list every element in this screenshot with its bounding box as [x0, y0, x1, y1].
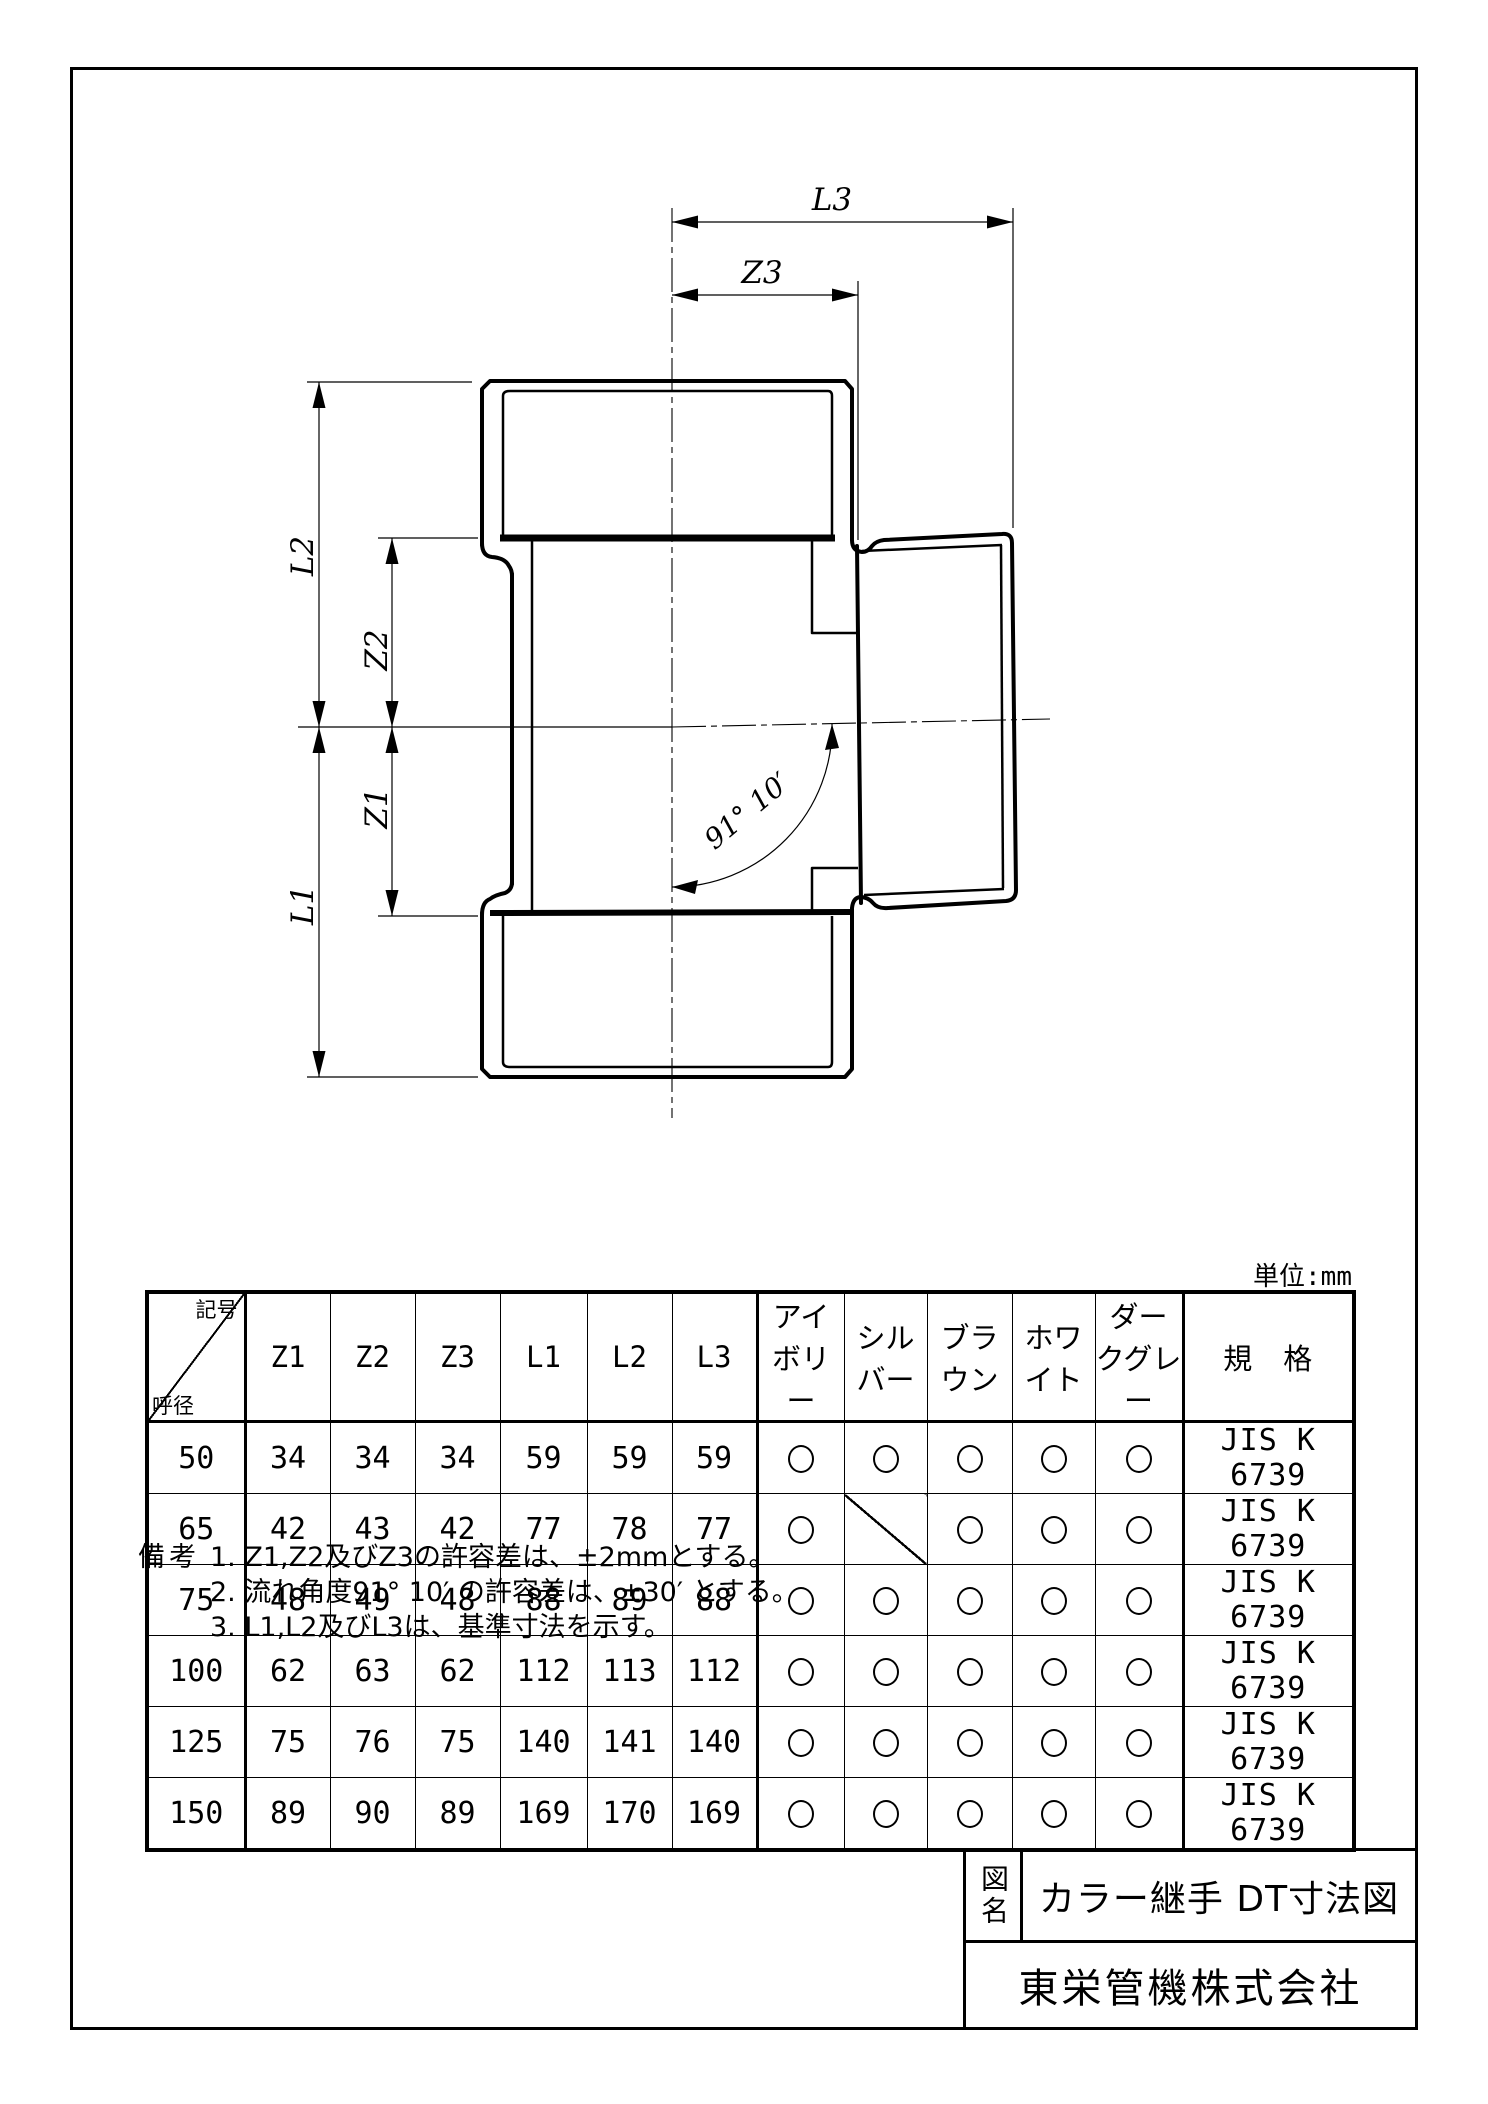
dimension-Z1: Z1 [359, 727, 478, 916]
column-header-シルバー: シルバー [844, 1292, 927, 1422]
available-circle-icon [1126, 1658, 1152, 1686]
column-header-アイボリー: アイボリー [757, 1292, 844, 1422]
dim-value-cell: 62 [245, 1636, 330, 1707]
color-availability-cell [1012, 1422, 1095, 1494]
label-Z2: Z2 [359, 629, 395, 671]
available-circle-icon [1126, 1729, 1152, 1757]
color-availability-cell [927, 1422, 1012, 1494]
dim-value-cell: 90 [330, 1778, 415, 1851]
label-L1: L1 [285, 885, 321, 926]
notes: 備考 1. Z1,Z2及びZ3の許容差は、±2mmとする。2. 流れ角度91° … [138, 1540, 799, 1645]
label-angle: 91° 10′ [698, 765, 797, 855]
column-header-規 格: 規 格 [1183, 1292, 1354, 1422]
title-block: 図名 カラー継手 DT寸法図 東栄管機株式会社 [963, 1848, 1418, 2030]
available-circle-icon [1126, 1587, 1152, 1615]
dimension-L3: L3 [672, 182, 1013, 528]
color-availability-cell [1095, 1494, 1183, 1565]
title-block-field-label: 図名 [966, 1851, 1023, 1940]
column-header-L2: L2 [587, 1292, 672, 1422]
color-availability-cell [927, 1565, 1012, 1636]
dim-value-cell: 89 [245, 1778, 330, 1851]
size-cell: 100 [147, 1636, 245, 1707]
note-item-2: 2. 流れ角度91° 10′ の許容差は、±30′ とする。 [210, 1575, 799, 1610]
color-availability-cell [844, 1707, 927, 1778]
available-circle-icon [957, 1587, 983, 1615]
dim-value-cell: 34 [415, 1422, 500, 1494]
drawing-title: カラー継手 DT寸法図 [1023, 1851, 1415, 1940]
column-header-ブラウン: ブラウン [927, 1292, 1012, 1422]
table-row-50: 50343434595959JIS K 6739 [147, 1422, 1354, 1494]
available-circle-icon [873, 1729, 899, 1757]
drawing-sheet: L3 Z3 L2 Z2 [0, 0, 1488, 2104]
dimension-Z3: Z3 [672, 255, 858, 540]
available-circle-icon [873, 1587, 899, 1615]
standard-cell: JIS K 6739 [1183, 1778, 1354, 1851]
available-circle-icon [1126, 1800, 1152, 1828]
available-circle-icon [1126, 1445, 1152, 1473]
column-header-Z1: Z1 [245, 1292, 330, 1422]
table-row-100: 100626362112113112JIS K 6739 [147, 1636, 1354, 1707]
available-circle-icon [873, 1445, 899, 1473]
available-circle-icon [873, 1658, 899, 1686]
table-corner-cell: 記号呼径 [147, 1292, 245, 1422]
dim-value-cell: 76 [330, 1707, 415, 1778]
fitting-drawing: L3 Z3 L2 Z2 [0, 0, 1488, 1250]
available-circle-icon [788, 1729, 814, 1757]
color-availability-cell [1095, 1778, 1183, 1851]
dim-value-cell: 112 [500, 1636, 587, 1707]
column-header-Z3: Z3 [415, 1292, 500, 1422]
dim-value-cell: 113 [587, 1636, 672, 1707]
color-availability-cell [1095, 1707, 1183, 1778]
dimension-L2: L2 [285, 382, 472, 727]
dim-value-cell: 34 [330, 1422, 415, 1494]
dim-value-cell: 75 [245, 1707, 330, 1778]
color-availability-cell [927, 1494, 1012, 1565]
column-header-ダークグレー: ダークグレー [1095, 1292, 1183, 1422]
standard-cell: JIS K 6739 [1183, 1565, 1354, 1636]
color-availability-cell [1095, 1422, 1183, 1494]
size-cell: 125 [147, 1707, 245, 1778]
note-item-1: 1. Z1,Z2及びZ3の許容差は、±2mmとする。 [210, 1540, 799, 1575]
color-availability-cell [1012, 1494, 1095, 1565]
column-header-L1: L1 [500, 1292, 587, 1422]
table-row-125: 125757675140141140JIS K 6739 [147, 1707, 1354, 1778]
notes-heading: 備考 [138, 1540, 200, 1645]
color-availability-cell [1095, 1636, 1183, 1707]
dim-value-cell: 62 [415, 1636, 500, 1707]
size-cell: 150 [147, 1778, 245, 1851]
unit-label: 単位:mm [1180, 1256, 1352, 1293]
fitting-outline [482, 381, 1016, 1077]
color-availability-cell [1012, 1778, 1095, 1851]
available-circle-icon [1041, 1658, 1067, 1686]
label-Z3: Z3 [740, 255, 782, 291]
dim-value-cell: 169 [500, 1778, 587, 1851]
available-circle-icon [788, 1445, 814, 1473]
dimension-Z2: Z2 [359, 538, 478, 727]
color-availability-cell [844, 1565, 927, 1636]
not-available-slash [844, 1494, 927, 1565]
dim-value-cell: 112 [672, 1636, 757, 1707]
standard-cell: JIS K 6739 [1183, 1494, 1354, 1565]
company-name: 東栄管機株式会社 [966, 1943, 1415, 2027]
note-item-3: 3. L1,L2及びL3は、基準寸法を示す。 [210, 1610, 799, 1645]
dim-value-cell: 34 [245, 1422, 330, 1494]
standard-cell: JIS K 6739 [1183, 1422, 1354, 1494]
label-L2: L2 [285, 536, 321, 577]
available-circle-icon [1041, 1445, 1067, 1473]
dim-value-cell: 140 [672, 1707, 757, 1778]
dim-value-cell: 59 [500, 1422, 587, 1494]
color-availability-cell [1012, 1636, 1095, 1707]
color-availability-cell [1095, 1565, 1183, 1636]
color-availability-cell [757, 1707, 844, 1778]
column-header-L3: L3 [672, 1292, 757, 1422]
dimension-L1: L1 [285, 727, 478, 1077]
color-availability-cell [844, 1636, 927, 1707]
color-availability-cell [927, 1707, 1012, 1778]
color-availability-cell [844, 1778, 927, 1851]
dim-value-cell: 169 [672, 1778, 757, 1851]
color-availability-cell [927, 1778, 1012, 1851]
color-availability-cell [1012, 1565, 1095, 1636]
color-availability-cell [757, 1422, 844, 1494]
corner-symbol-label: 記号 [196, 1294, 238, 1324]
dim-value-cell: 170 [587, 1778, 672, 1851]
color-availability-cell [844, 1422, 927, 1494]
available-circle-icon [957, 1729, 983, 1757]
available-circle-icon [1041, 1516, 1067, 1544]
available-circle-icon [788, 1800, 814, 1828]
available-circle-icon [1041, 1587, 1067, 1615]
available-circle-icon [1041, 1800, 1067, 1828]
available-circle-icon [957, 1658, 983, 1686]
available-circle-icon [1041, 1729, 1067, 1757]
dim-value-cell: 75 [415, 1707, 500, 1778]
available-circle-icon [1126, 1516, 1152, 1544]
dim-value-cell: 140 [500, 1707, 587, 1778]
standard-cell: JIS K 6739 [1183, 1636, 1354, 1707]
dim-value-cell: 141 [587, 1707, 672, 1778]
table-row-150: 150899089169170169JIS K 6739 [147, 1778, 1354, 1851]
color-availability-cell [927, 1636, 1012, 1707]
color-availability-cell [1012, 1707, 1095, 1778]
available-circle-icon [957, 1445, 983, 1473]
available-circle-icon [957, 1516, 983, 1544]
column-header-Z2: Z2 [330, 1292, 415, 1422]
color-availability-cell [757, 1778, 844, 1851]
dim-value-cell: 59 [587, 1422, 672, 1494]
corner-size-label: 呼径 [152, 1390, 194, 1420]
available-circle-icon [873, 1800, 899, 1828]
color-availability-cell [757, 1636, 844, 1707]
size-cell: 50 [147, 1422, 245, 1494]
dim-value-cell: 59 [672, 1422, 757, 1494]
label-Z1: Z1 [359, 787, 395, 829]
dim-value-cell: 63 [330, 1636, 415, 1707]
available-circle-icon [957, 1800, 983, 1828]
dim-value-cell: 89 [415, 1778, 500, 1851]
standard-cell: JIS K 6739 [1183, 1707, 1354, 1778]
column-header-ホワイト: ホワイト [1012, 1292, 1095, 1422]
available-circle-icon [788, 1658, 814, 1686]
notes-items: 1. Z1,Z2及びZ3の許容差は、±2mmとする。2. 流れ角度91° 10′… [210, 1540, 799, 1645]
label-L3: L3 [811, 182, 852, 218]
